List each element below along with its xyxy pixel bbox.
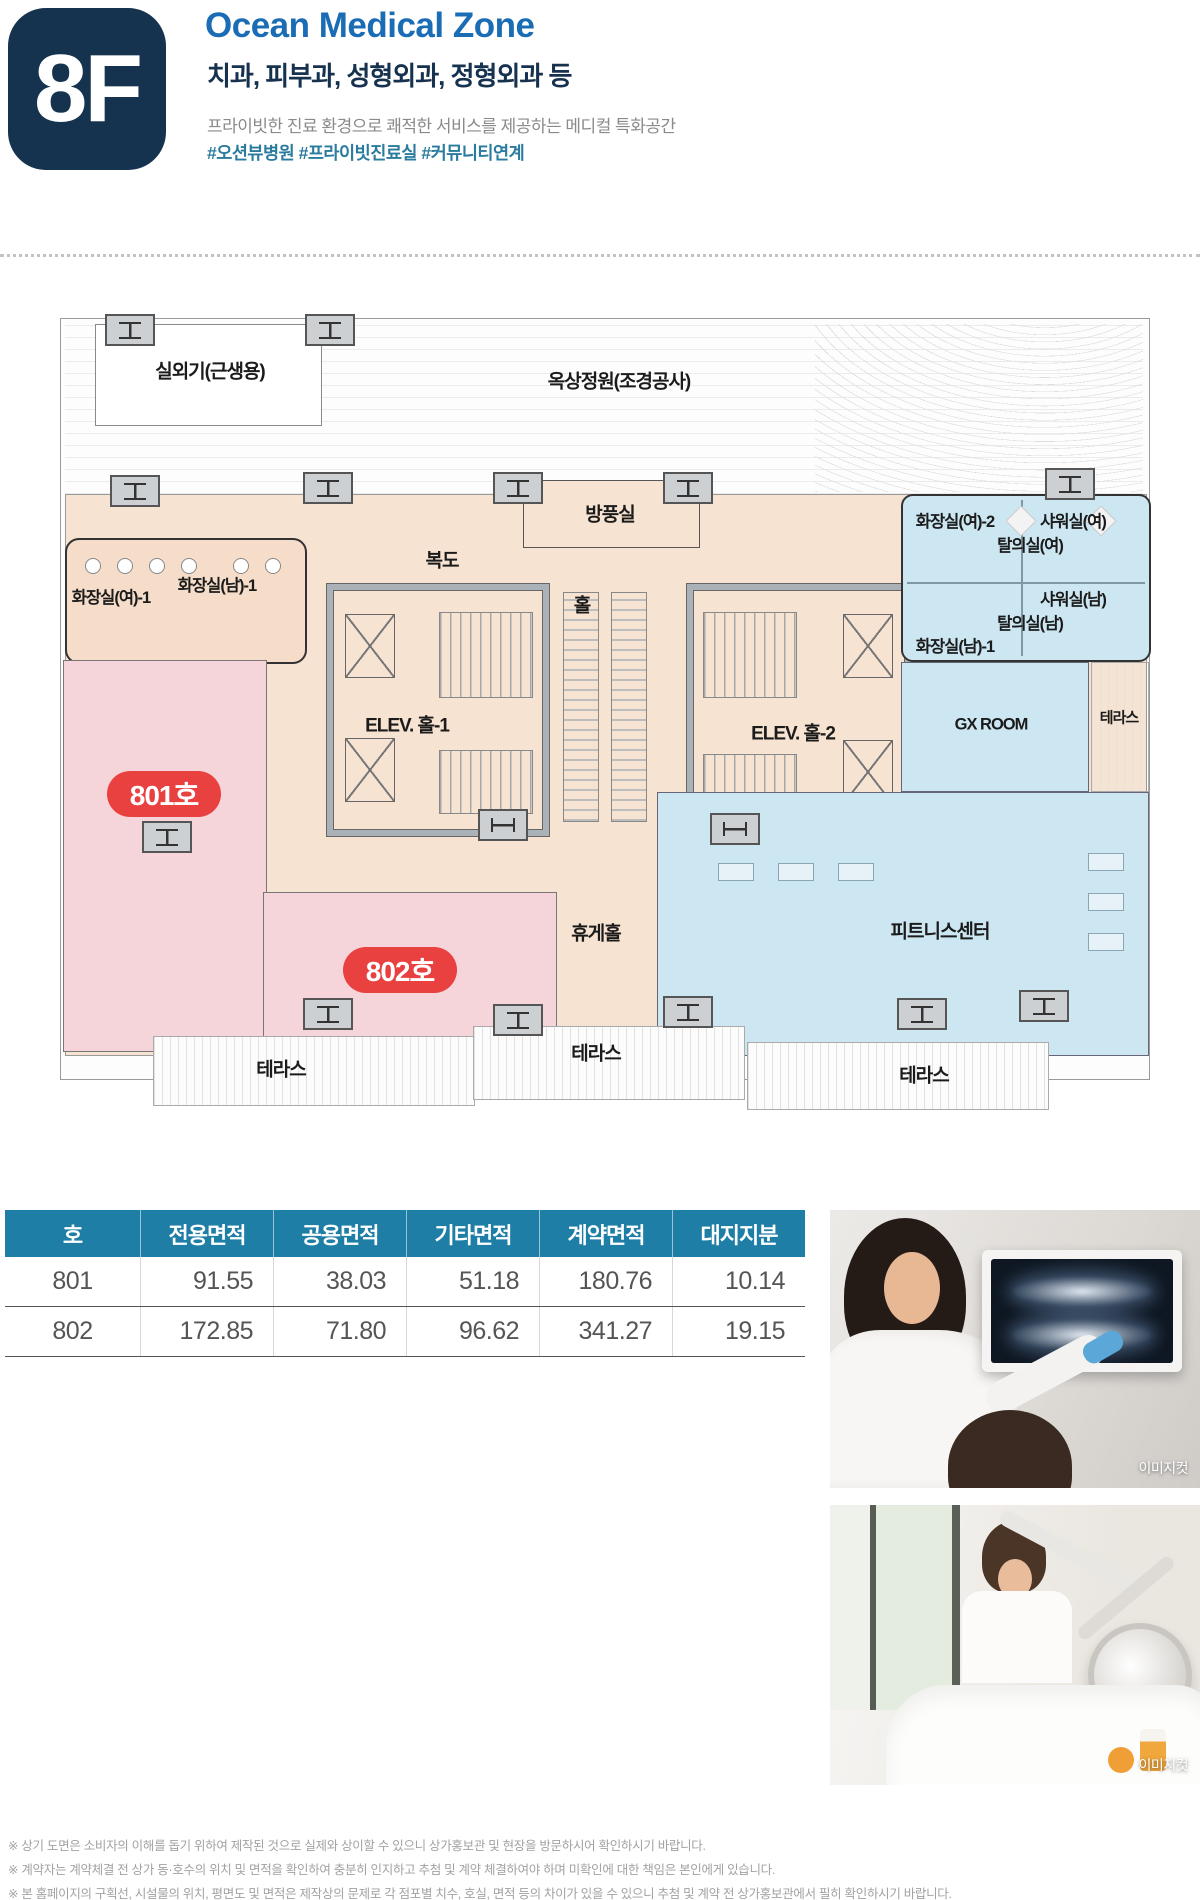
toilet-fixture-icon [149,558,165,574]
cell-common: 71.80 [273,1307,406,1356]
col-header-unit: 호 [5,1210,140,1257]
label-elev-hall-2: ELEV. 홀-2 [751,719,835,746]
terrace-bottom-right [747,1042,1049,1110]
toilet-fixture-icon [265,558,281,574]
photo-dentist-xray: 이미지컷 [830,1210,1200,1488]
col-header-exclusive: 전용면적 [140,1210,273,1257]
door-marker-icon [303,998,353,1030]
fitness-equipment-icon [1088,853,1124,871]
xray-upper-teeth-shape [1013,1276,1151,1307]
cell-exclusive: 172.85 [140,1307,273,1356]
image-caption: 이미지컷 [1138,1458,1188,1478]
col-header-other: 기타면적 [406,1210,539,1257]
floor-plan: 실외기(근생용) 옥상정원(조경공사) 방풍실 복도 홀 화장실(여)-1 화장… [35,262,1165,1152]
fitness-equipment-icon [838,863,874,881]
stairs-icon [439,750,533,814]
label-terrace-bottom-center: 테라스 [571,1039,620,1066]
h-beam-glyph [723,822,747,836]
escalator-track-icon [563,592,599,822]
floor-badge: 8F [8,8,166,170]
label-toilet-m1-left: 화장실(남)-1 [178,572,256,596]
i-beam-glyph [507,1012,529,1029]
label-shower-w: 샤워실(여) [1040,508,1106,532]
label-toilet-w1: 화장실(여)-1 [72,584,150,608]
col-header-common: 공용면적 [273,1210,406,1257]
label-toilet-m1-right: 화장실(남)-1 [916,633,994,657]
elevator-shaft-icon [345,614,395,678]
footnote-line: ※ 상기 도면은 소비자의 이해를 돕기 위하여 제작된 것으로 실제와 상이할… [8,1834,1193,1858]
label-corridor: 복도 [426,546,459,573]
label-gx-room: GX ROOM [955,716,1028,735]
therapist-top-shape [962,1591,1072,1683]
door-marker-icon [142,821,192,853]
label-lounge: 휴게홀 [571,919,620,946]
door-marker-icon [493,1004,543,1036]
h-beam-marker-icon [478,809,528,841]
footnote-line: ※ 본 홈페이지의 구획선, 시설물의 위치, 평면도 및 면적은 제작상의 문… [8,1882,1193,1900]
label-roof-garden: 옥상정원(조경공사) [548,367,691,394]
door-marker-icon [305,314,355,346]
toilet-fixture-icon [85,558,101,574]
door-marker-icon [303,472,353,504]
escalator [559,592,651,820]
dotted-divider [0,254,1200,257]
i-beam-glyph [911,1006,933,1023]
elevator-shaft-icon [345,738,395,802]
door-marker-icon [897,998,947,1030]
i-beam-glyph [507,480,529,497]
fitness-equipment-icon [718,863,754,881]
hashtags: #오션뷰병원 #프라이빗진료실 #커뮤니티연계 [207,140,524,165]
i-beam-glyph [319,322,341,339]
unit-801-area [63,660,267,1052]
door-marker-icon [105,314,155,346]
fitness-equipment-icon [1088,893,1124,911]
cell-contract: 180.76 [539,1257,672,1306]
col-header-contract: 계약면적 [539,1210,672,1257]
partition-wall [907,582,1145,584]
label-shower-m: 샤워실(남) [1040,586,1106,610]
h-beam-marker-icon [710,813,760,845]
i-beam-glyph [156,829,178,846]
fitness-equipment-icon [1088,933,1124,951]
footnote-line: ※ 계약자는 계약체결 전 상가 동·호수의 위치 및 면적을 확인하여 충분히… [8,1858,1193,1882]
table-row-802: 802 172.85 71.80 96.62 341.27 19.15 [5,1307,805,1357]
door-marker-icon [663,472,713,504]
table-row-801: 801 91.55 38.03 51.18 180.76 10.14 [5,1257,805,1307]
cell-other: 51.18 [406,1257,539,1306]
page-title: Ocean Medical Zone [205,6,534,46]
label-terrace-right: 테라스 [1100,707,1138,728]
label-locker-w: 탈의실(여) [997,532,1063,556]
cell-unit: 802 [5,1307,140,1356]
label-windbreak: 방풍실 [585,500,634,527]
label-outdoor-unit: 실외기(근생용) [155,357,265,384]
page-description: 프라이빗한 진료 환경으로 쾌적한 서비스를 제공하는 메디컬 특화공간 [207,112,676,137]
doctor-face-shape [884,1252,940,1324]
i-beam-glyph [1059,476,1081,493]
window-shape [830,1505,960,1710]
page-subtitle: 치과, 피부과, 성형외과, 정형외과 등 [207,56,571,93]
i-beam-glyph [677,1004,699,1021]
label-toilet-w2: 화장실(여)-2 [916,508,994,532]
escalator-track-icon [611,592,647,822]
cell-common: 38.03 [273,1257,406,1306]
i-beam-glyph [677,480,699,497]
area-table-header-row: 호 전용면적 공용면적 기타면적 계약면적 대지지분 [5,1210,805,1257]
area-table: 호 전용면적 공용면적 기타면적 계약면적 대지지분 801 91.55 38.… [5,1210,805,1357]
label-locker-m: 탈의실(남) [997,610,1063,634]
cell-land: 19.15 [672,1307,805,1356]
i-beam-glyph [317,1006,339,1023]
label-hall: 홀 [574,591,590,618]
stairs-icon [439,612,533,698]
i-beam-glyph [317,480,339,497]
label-terrace-bottom-left: 테라스 [256,1055,305,1082]
cell-land: 10.14 [672,1257,805,1306]
col-header-land: 대지지분 [672,1210,805,1257]
cell-unit: 801 [5,1257,140,1306]
i-beam-glyph [1033,998,1055,1015]
fitness-equipment-icon [778,863,814,881]
toilet-fixture-icon [117,558,133,574]
label-terrace-bottom-right: 테라스 [899,1061,948,1088]
footnotes: ※ 상기 도면은 소비자의 이해를 돕기 위하여 제작된 것으로 실제와 상이할… [8,1834,1193,1900]
cell-contract: 341.27 [539,1307,672,1356]
cell-exclusive: 91.55 [140,1257,273,1306]
door-marker-icon [493,472,543,504]
door-marker-icon [1045,468,1095,500]
door-marker-icon [110,475,160,507]
i-beam-glyph [124,483,146,500]
unit-802-badge: 802호 [343,947,457,993]
orange-shape [1108,1747,1134,1773]
cell-other: 96.62 [406,1307,539,1356]
unit-801-badge: 801호 [107,771,221,817]
floor-guide-page: 8F Ocean Medical Zone 치과, 피부과, 성형외과, 정형외… [0,0,1200,1900]
door-marker-icon [1019,990,1069,1022]
i-beam-glyph [119,322,141,339]
terrace-bottom-left [153,1036,475,1106]
label-fitness: 피트니스센터 [891,917,990,944]
stairs-icon [703,612,797,698]
image-caption: 이미지컷 [1138,1755,1188,1775]
photo-clinic-treatment: 이미지컷 [830,1505,1200,1785]
roof-garden-contour [815,324,1143,492]
h-beam-glyph [491,818,515,832]
elevator-shaft-icon [843,614,893,678]
label-elev-hall-1: ELEV. 홀-1 [365,711,449,738]
door-marker-icon [663,996,713,1028]
